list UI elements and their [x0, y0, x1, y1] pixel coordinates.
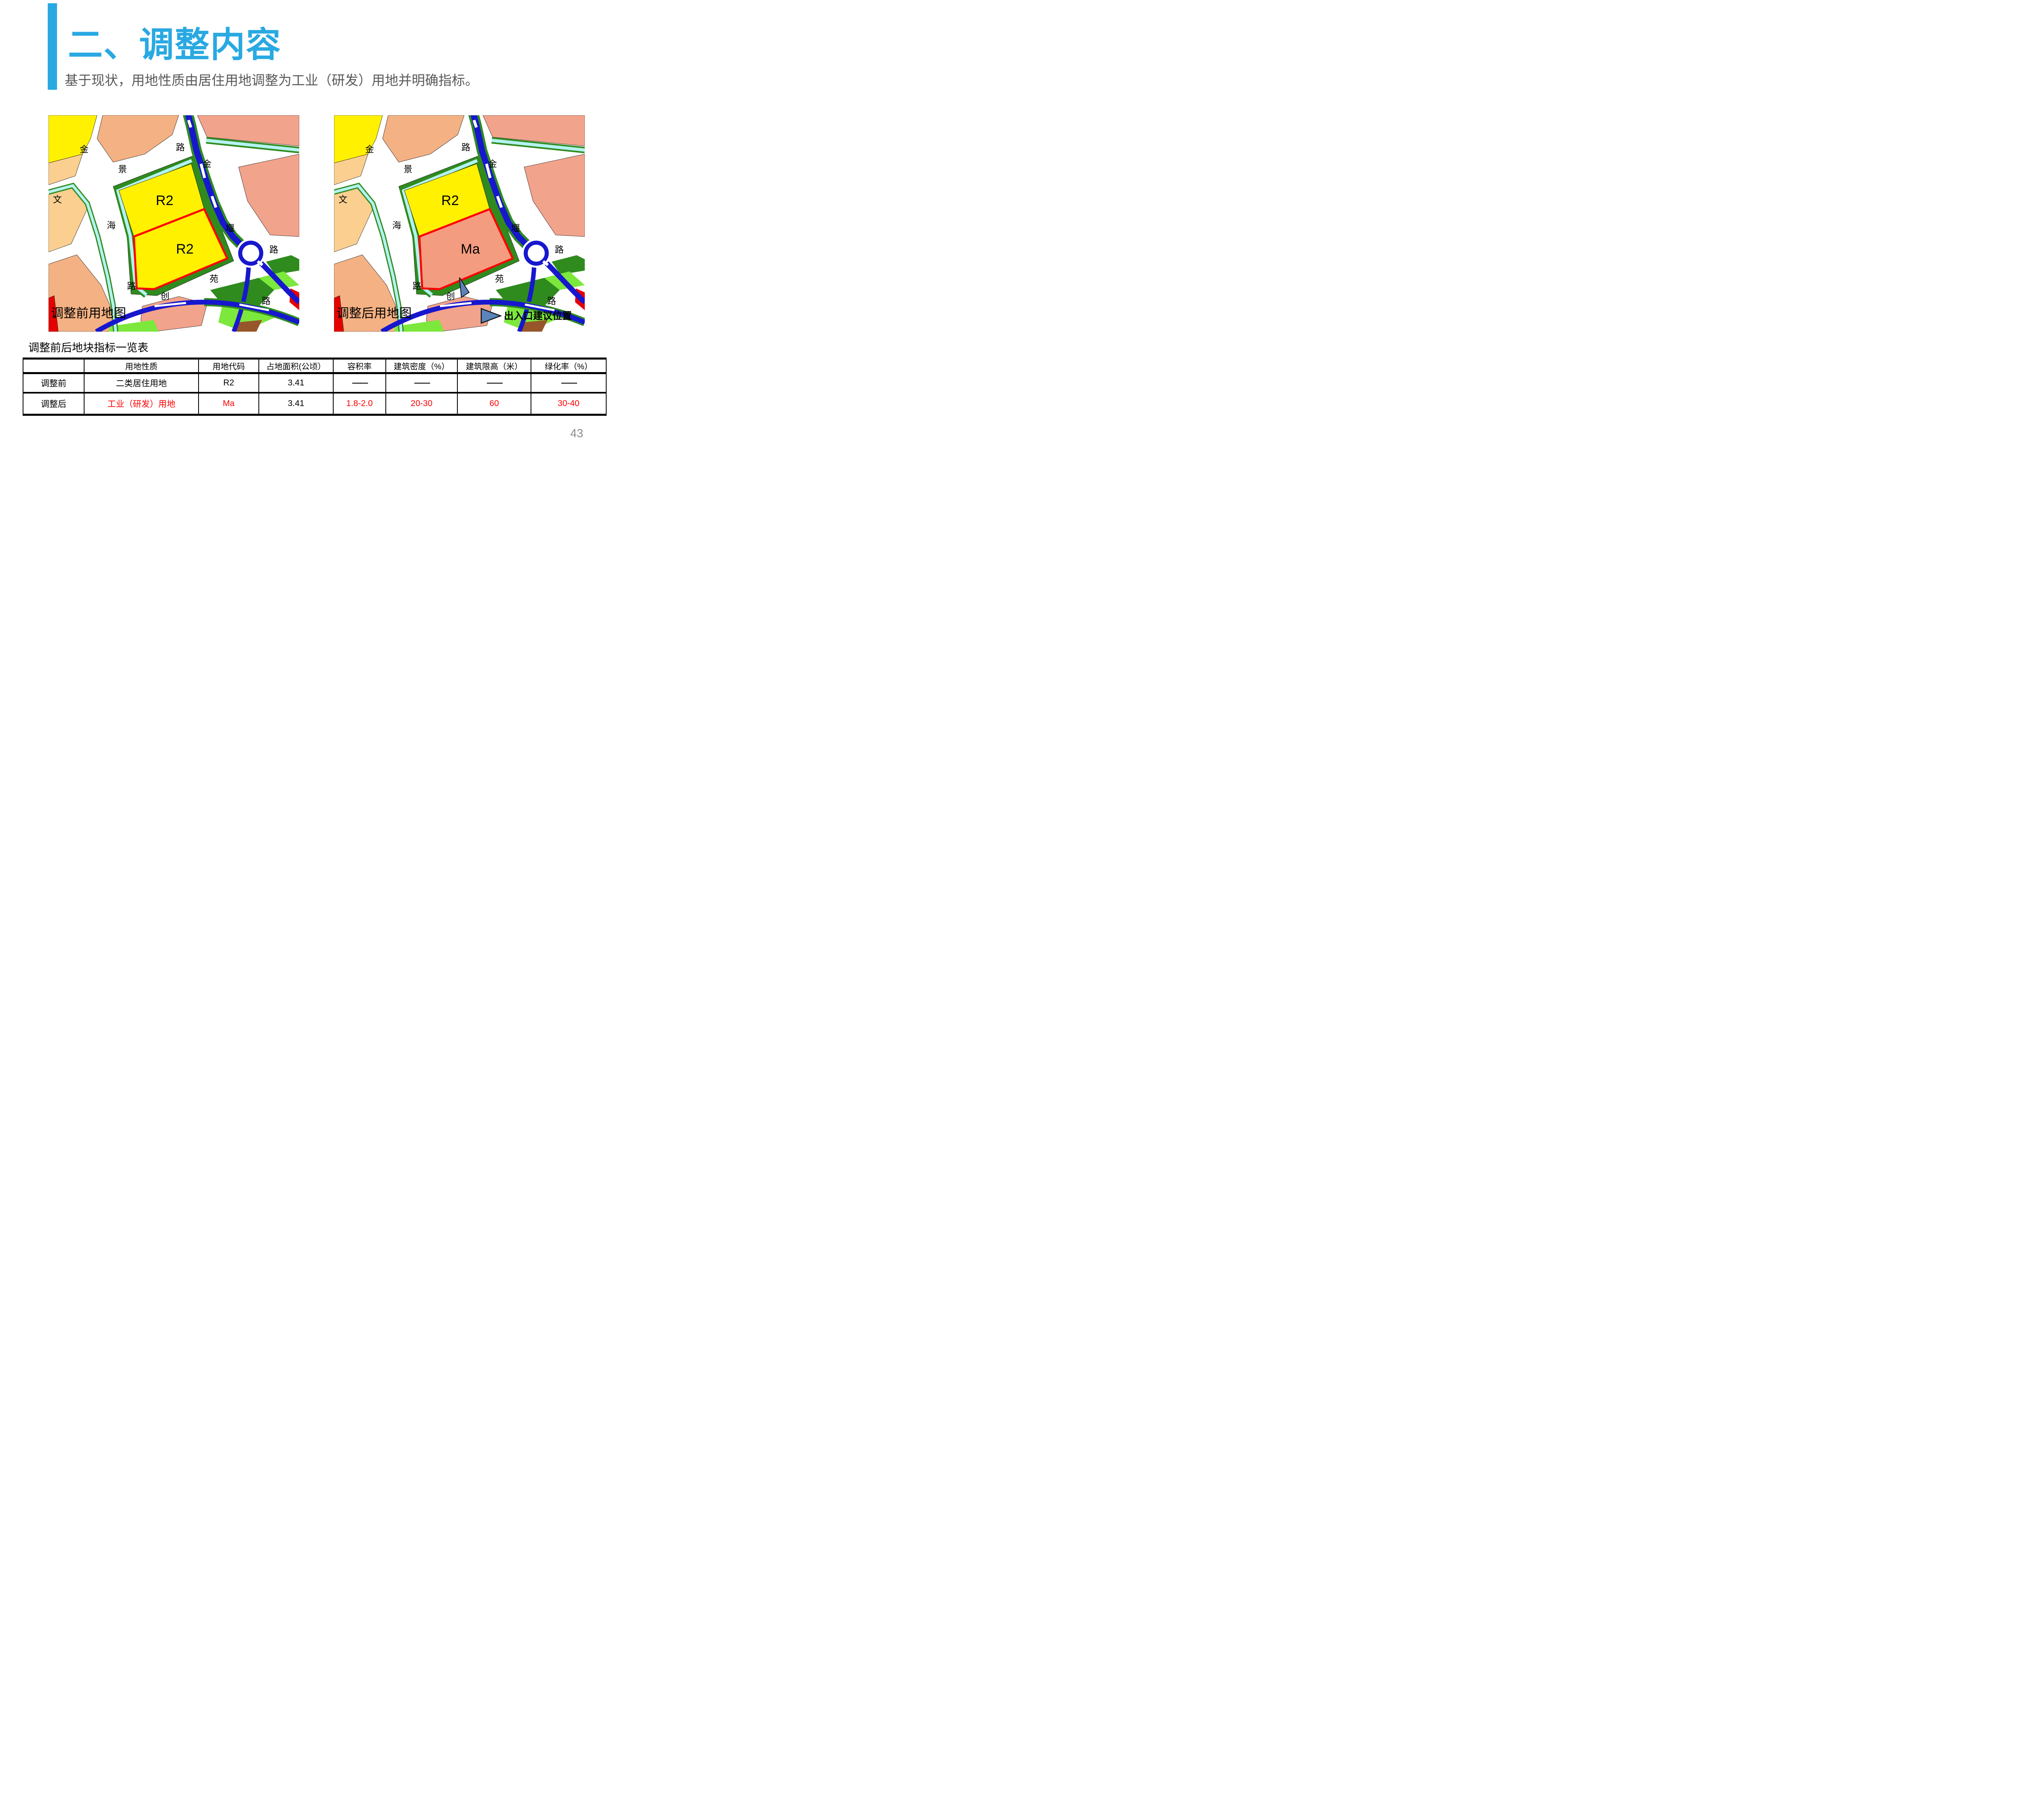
- road-label-lu-e: 路: [269, 245, 278, 255]
- road-label-lu-sw: 路: [127, 281, 136, 291]
- page-subtitle: 基于现状，用地性质由居住用地调整为工业（研发）用地并明确指标。: [65, 70, 590, 89]
- road-label-chuang: 创: [161, 291, 169, 301]
- road-label-yan: 堰: [226, 223, 235, 233]
- legend-label: 出入口建议位置: [504, 310, 572, 322]
- road-label-lu-sw: 路: [412, 281, 421, 291]
- road-label-yan: 堰: [511, 223, 520, 233]
- page-title: 二、调整内容: [68, 16, 553, 67]
- cell-after-far: 1.8-2.0: [334, 394, 386, 414]
- upper-parcel-label: R2: [441, 193, 459, 208]
- cell-before-landuse: 二类居住用地: [85, 374, 199, 394]
- page-number: 43: [570, 427, 583, 440]
- table-header-density: 建筑密度（%）: [386, 360, 458, 374]
- table-header-far: 容积率: [334, 360, 386, 374]
- map-caption-after: 调整后用地图: [336, 306, 412, 320]
- indicator-table: 用地性质 用地代码 占地面积(公顷） 容积率 建筑密度（%） 建筑限高（米） 绿…: [23, 358, 607, 416]
- road-label-hai: 海: [107, 220, 116, 231]
- row-label-before: 调整前: [23, 374, 85, 394]
- lower-parcel-label: Ma: [461, 241, 480, 257]
- upper-parcel-label: R2: [156, 193, 173, 208]
- road-label-hai: 海: [392, 220, 401, 231]
- road-label-lu-ne: 路: [176, 142, 185, 152]
- cell-before-code: R2: [199, 374, 259, 394]
- table-header-landuse: 用地性质: [85, 360, 199, 374]
- table-header-code: 用地代码: [199, 360, 259, 374]
- road-label-jing: 景: [118, 164, 127, 174]
- cell-after-code: Ma: [199, 394, 259, 414]
- table-header-height: 建筑限高（米）: [458, 360, 531, 374]
- lower-parcel-label: R2: [176, 241, 193, 257]
- table-header-greening: 绿化率（%）: [531, 360, 607, 374]
- cell-before-height: ——: [458, 374, 531, 394]
- cell-before-area: 3.41: [259, 374, 334, 394]
- road-label-yuan: 苑: [495, 274, 504, 284]
- road-label-lu-se: 路: [262, 296, 271, 306]
- cell-before-density: ——: [386, 374, 458, 394]
- cell-before-greening: ——: [531, 374, 607, 394]
- road-label-lu-ne: 路: [461, 142, 470, 152]
- cell-after-area: 3.41: [259, 394, 334, 414]
- title-accent-bar: [48, 3, 57, 90]
- table-header-area: 占地面积(公顷）: [259, 360, 334, 374]
- cell-after-greening: 30-40: [531, 394, 607, 414]
- cell-after-landuse: 工业（研发）用地: [85, 394, 199, 414]
- before-map: 金 景 路 金 文 海 路 创 苑 路 堰 路 R2 R2 调整前用地图: [49, 115, 299, 332]
- row-label-after: 调整后: [23, 394, 85, 414]
- map-caption-before: 调整前用地图: [51, 306, 126, 320]
- cell-after-density: 20-30: [386, 394, 458, 414]
- road-label-jin-expwy: 金: [203, 159, 212, 169]
- road-label-jin-nw: 金: [80, 144, 89, 154]
- road-label-jing: 景: [404, 164, 412, 174]
- road-label-lu-e: 路: [555, 245, 564, 255]
- road-label-jin-nw: 金: [365, 144, 374, 154]
- road-label-lu-se: 路: [547, 296, 556, 306]
- table-title: 调整前后地块指标一览表: [28, 339, 148, 355]
- cell-after-height: 60: [458, 394, 531, 414]
- after-map: 金 景 路 金 文 海 路 创 苑 路 堰 路 R2 Ma 出入口建议位置 调整…: [334, 115, 585, 332]
- road-label-chuang: 创: [446, 291, 455, 301]
- cell-before-far: ——: [334, 374, 386, 394]
- road-label-yuan: 苑: [209, 274, 218, 284]
- road-label-wen: 文: [338, 195, 347, 205]
- road-label-wen: 文: [53, 195, 62, 205]
- road-label-jin-expwy: 金: [488, 159, 497, 169]
- table-header-empty: [23, 360, 85, 374]
